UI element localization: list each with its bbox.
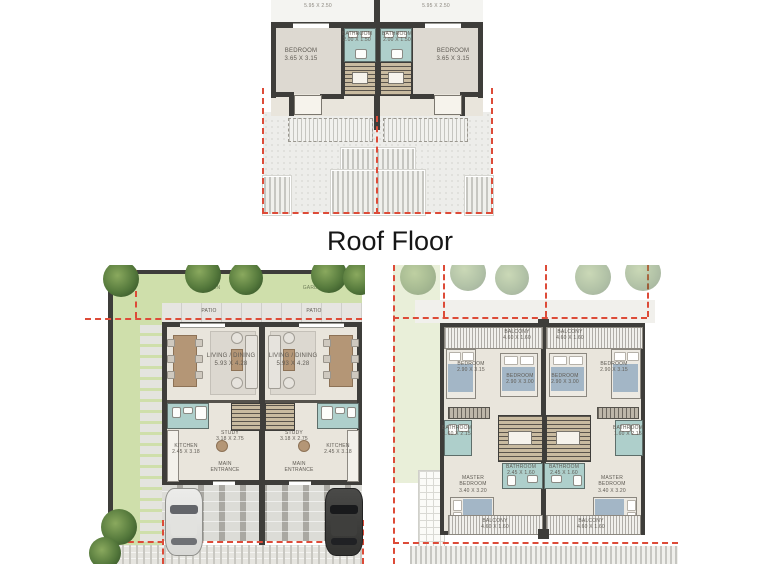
roof-pergola-right [383,118,468,142]
toilet [573,475,582,486]
tree [89,537,121,564]
terrace-divider-wall [374,0,380,22]
boundary-line [376,116,378,214]
car-roof [331,516,357,536]
powder-room-right [317,403,359,429]
armchair [231,377,243,389]
roof-bedroom-right-label: BEDROOM3.65 X 3.15 [437,48,470,63]
rear-balcony-right-label: BALCONY4.60 X 1.60 [577,518,605,531]
bathroom-center-right-label: BATHROOM2.45 X 1.60 [549,464,579,477]
stair-landing [508,431,532,445]
boundary-line [491,88,493,214]
roof-bedroom-left-label: BEDROOM3.65 X 3.15 [285,48,318,63]
boundary-line [108,541,362,543]
first-floor-plan: BALCONY4.60 X 1.60 BALCONY4.60 X 1.60 BE… [390,265,680,564]
boundary-line [262,88,264,214]
bathroom-side-left-label: BATHROOM1.60 X 2.15 [442,425,472,438]
boundary-line [262,212,492,214]
rear-window [331,538,357,545]
roof-floor-plan: 5.95 X 2.50 5.95 X 2.50 BEDROOM3.65 X 3.… [253,0,501,222]
pillow [627,500,636,511]
chair [167,371,175,379]
chair [195,355,203,363]
boundary-line [443,265,445,317]
canopy-strip [410,546,678,564]
lower-roof-right [465,176,493,215]
chair [323,355,331,363]
terrace-left-label: 5.95 X 2.50 [304,3,332,9]
dining-table [329,335,353,387]
bedroom-inner-left-label: BEDROOM2.90 X 3.00 [506,373,534,386]
patio-below [415,300,655,323]
chair [323,371,331,379]
kitchen-counter [347,430,359,482]
rear-window [171,538,197,545]
car-roof [171,516,197,536]
roof-pergola-left [288,118,373,142]
front-balcony-right-label: BALCONY4.60 X 1.60 [556,329,584,342]
boundary-line [393,542,678,544]
pillow [449,352,461,361]
living-left-label: LIVING / DINING5.93 X 4.28 [207,353,256,368]
bedroom-outer-right-label: BEDROOM2.90 X 3.15 [600,361,628,374]
entrance-left-label: MAIN ENTRANCE [208,461,242,474]
windshield [170,505,198,514]
roof-landing-pad-left [294,95,322,115]
pillow [504,356,518,365]
balcony-divider-stub [538,529,549,539]
patio-door [180,323,225,328]
master-left-label: MASTER BEDROOM3.40 X 3.20 [456,475,490,494]
roof-right-wall [478,22,483,98]
roof-bathroom-right-label: BATHROOM2.00 X 1.50 [382,31,412,44]
ground-stairs-right [265,403,295,431]
wall-stub [320,94,344,99]
boundary-line [393,265,395,564]
shower [321,406,333,420]
garden-below [393,265,440,483]
lower-roof-center [331,170,425,215]
pillow [614,352,626,361]
chair [351,371,359,379]
shower [391,49,403,59]
boundary-line [85,318,362,320]
front-balcony-left-label: BALCONY4.60 X 1.60 [503,329,531,342]
wardrobe [597,407,639,419]
roof-landing-pad-right [434,95,462,115]
tree [575,265,611,295]
car-white [165,488,203,556]
chair [167,355,175,363]
sidewalk-band [108,545,362,564]
boundary-line [393,317,647,319]
chair [195,339,203,347]
balcony-divider-stub [538,319,549,327]
patio-right-label: PATIO [306,308,321,314]
boundary-line [545,265,547,317]
pillow [462,352,474,361]
powder-room-left [167,403,209,429]
ground-floor-plan: GARDEN GARDEN PATIO PATIO LIVING / DININ… [85,265,365,564]
ground-stairs-left [231,403,261,431]
pillow [453,500,462,511]
floor-title: Roof Floor [290,224,490,258]
pillow [520,356,534,365]
bed [611,349,641,399]
kitchen-left-label: KITCHEN2.45 X 3.18 [172,443,200,456]
patio-door [299,323,344,328]
sink [183,407,193,414]
kitchen-counter [167,430,179,482]
chair [167,339,175,347]
wall-stub [463,92,480,97]
pillow [553,356,567,365]
bed [446,349,476,399]
study-right-label: STUDY3.18 X 2.75 [280,430,308,443]
bedroom-outer-left-label: BEDROOM2.90 X 3.15 [457,361,485,374]
stair-landing [352,72,368,84]
master-right-label: MASTER BEDROOM3.40 X 3.20 [595,475,629,494]
terrace-right-label: 5.95 X 2.50 [422,3,450,9]
boundary-line [162,520,164,564]
study-left-label: STUDY3.18 X 2.75 [216,430,244,443]
tree [625,265,661,291]
toilet [172,407,181,418]
patio-left-label: PATIO [201,308,216,314]
armchair [283,332,295,344]
chair [323,339,331,347]
chair [195,371,203,379]
car-dark [325,488,363,556]
chair [351,355,359,363]
sink [335,407,345,414]
dining-table [173,335,197,387]
armchair [283,377,295,389]
stair-landing [556,431,580,445]
roof-bathroom-left-label: BATHROOM2.00 X 1.50 [342,31,372,44]
living-right-label: LIVING / DINING5.93 X 4.28 [269,353,318,368]
tree [495,265,529,295]
toilet [507,475,516,486]
bedroom-inner-right-label: BEDROOM2.90 X 3.00 [551,373,579,386]
rear-balcony-left-label: BALCONY4.60 X 1.60 [481,518,509,531]
armchair [231,332,243,344]
stair-landing [388,72,404,84]
tree [450,265,486,291]
entrance-right-label: MAIN ENTRANCE [282,461,316,474]
windshield [330,505,358,514]
pillow [569,356,583,365]
wall-stub [410,94,434,99]
pillow [627,352,639,361]
shower [355,49,367,59]
kitchen-right-label: KITCHEN2.45 X 3.18 [324,443,352,456]
wardrobe [448,407,490,419]
bathroom-center-left-label: BATHROOM2.45 X 1.60 [506,464,536,477]
lower-roof-left [263,176,291,215]
chair [351,339,359,347]
garden-walkway [140,322,162,564]
bathroom-side-right-label: BATHROOM1.60 X 2.15 [613,425,643,438]
shower [195,406,207,420]
toilet [347,407,356,418]
